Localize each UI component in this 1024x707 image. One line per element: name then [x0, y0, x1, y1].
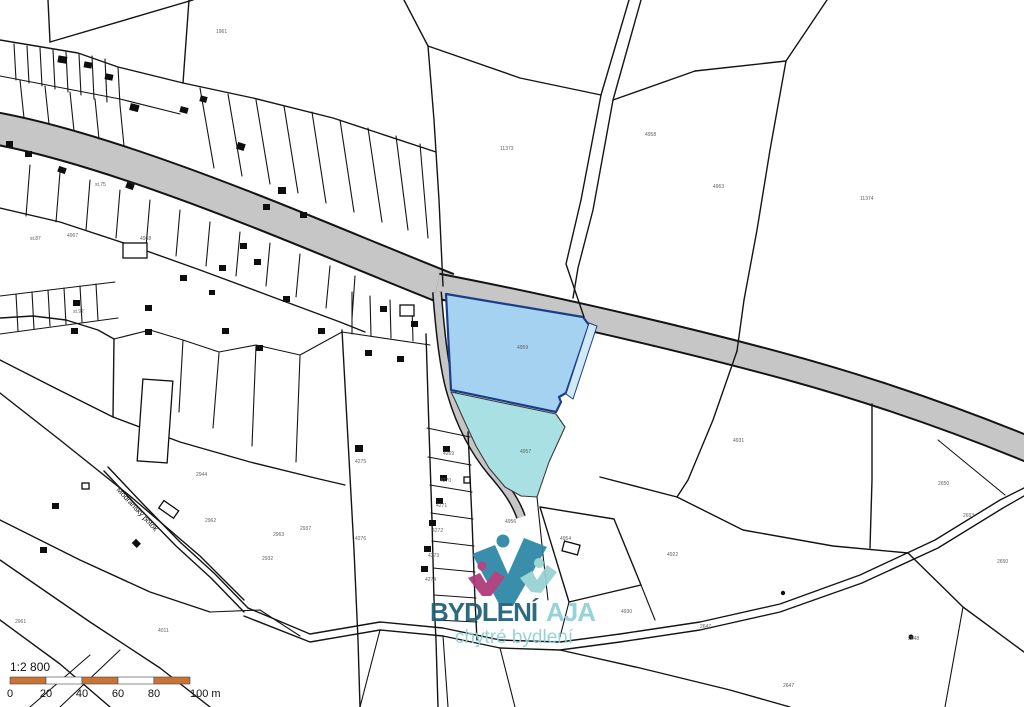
parcel-number: 2648: [908, 636, 919, 642]
scale-segment: [154, 677, 190, 684]
parcel-number: 4959: [517, 345, 528, 351]
parcel-number: 2944: [196, 472, 207, 478]
scale-bar-segments: [10, 677, 190, 684]
parcel-number: 4931: [733, 438, 744, 444]
parcel-number: 2647: [783, 683, 794, 689]
parcel-number: st.75: [95, 182, 106, 188]
large-building-outline: [137, 379, 173, 463]
parcel-number: 4011: [158, 628, 169, 634]
parcel-number: 4967: [67, 233, 78, 239]
stream-label: Modřanský potok: [115, 485, 161, 533]
parcel-number: 1961: [216, 29, 227, 35]
logo-subtitle: chytré bydlení: [455, 627, 574, 648]
cadastral-map-screenshot: 1961113734958496311374495949574956495442…: [0, 0, 1024, 707]
cadastral-map: 1961113734958496311374495949574956495442…: [0, 0, 1024, 707]
scale-tick-label: 80: [148, 688, 160, 700]
parcel-number: 4963: [713, 184, 724, 190]
parcel-number: 4274: [425, 577, 436, 583]
parcel-number: 4957: [520, 449, 531, 455]
scale-segment: [46, 677, 82, 684]
scale-tick-label: 0: [7, 688, 13, 700]
parcel-number: 2650: [997, 559, 1008, 565]
highlight-layer: [446, 294, 597, 497]
parcel-number: 4956: [505, 519, 516, 525]
parcel-number: 4922: [667, 552, 678, 558]
logo-title-primary: BYDLENÍ: [430, 597, 539, 627]
parcel-number: st.87: [30, 236, 41, 242]
parcel-number: 4958: [645, 132, 656, 138]
parcel-number: 2937: [300, 526, 311, 532]
scale-tick-label: 20: [40, 688, 52, 700]
parcel-number: 2647: [700, 624, 711, 630]
parcel-number: 2963: [273, 532, 284, 538]
parcel-number: 4275: [355, 459, 366, 465]
parcel-number: 2650: [938, 481, 949, 487]
scale-tick-label: 100 m: [190, 688, 221, 700]
parcel-number: 4273: [428, 553, 439, 559]
parcel-number: 2962: [205, 518, 216, 524]
parcel-number: 4271: [436, 503, 447, 509]
parcel-number: st.92: [73, 309, 84, 315]
scale-segment: [82, 677, 118, 684]
parcel-number: 2961: [15, 619, 26, 625]
parcel-number: 2932: [262, 556, 273, 562]
parcel-number: 2653: [963, 513, 974, 519]
parcel-number: 4272: [432, 528, 443, 534]
scale-segment: [10, 677, 46, 684]
scale-tick-label: 40: [76, 688, 88, 700]
parcel-number: 4954: [560, 536, 571, 542]
scale-tick-label: 60: [112, 688, 124, 700]
scale-segment: [118, 677, 154, 684]
main-road-left: [0, 128, 448, 289]
parcel-number: 4276: [355, 536, 366, 542]
parcel-number: 11373: [500, 146, 514, 152]
logo-title-secondary: AJA: [546, 597, 596, 627]
parcel-number: 4269: [443, 451, 454, 457]
parcel-number: 4930: [621, 609, 632, 615]
parcel-number: 11374: [860, 196, 874, 202]
parcel-number: 4968: [140, 236, 151, 242]
parcel-number: 4270: [440, 478, 451, 484]
logo-mark-icon: [468, 535, 557, 607]
scale-bar: 1:2 800 020406080100 m: [7, 660, 221, 700]
scale-ratio-label: 1:2 800: [10, 660, 50, 674]
